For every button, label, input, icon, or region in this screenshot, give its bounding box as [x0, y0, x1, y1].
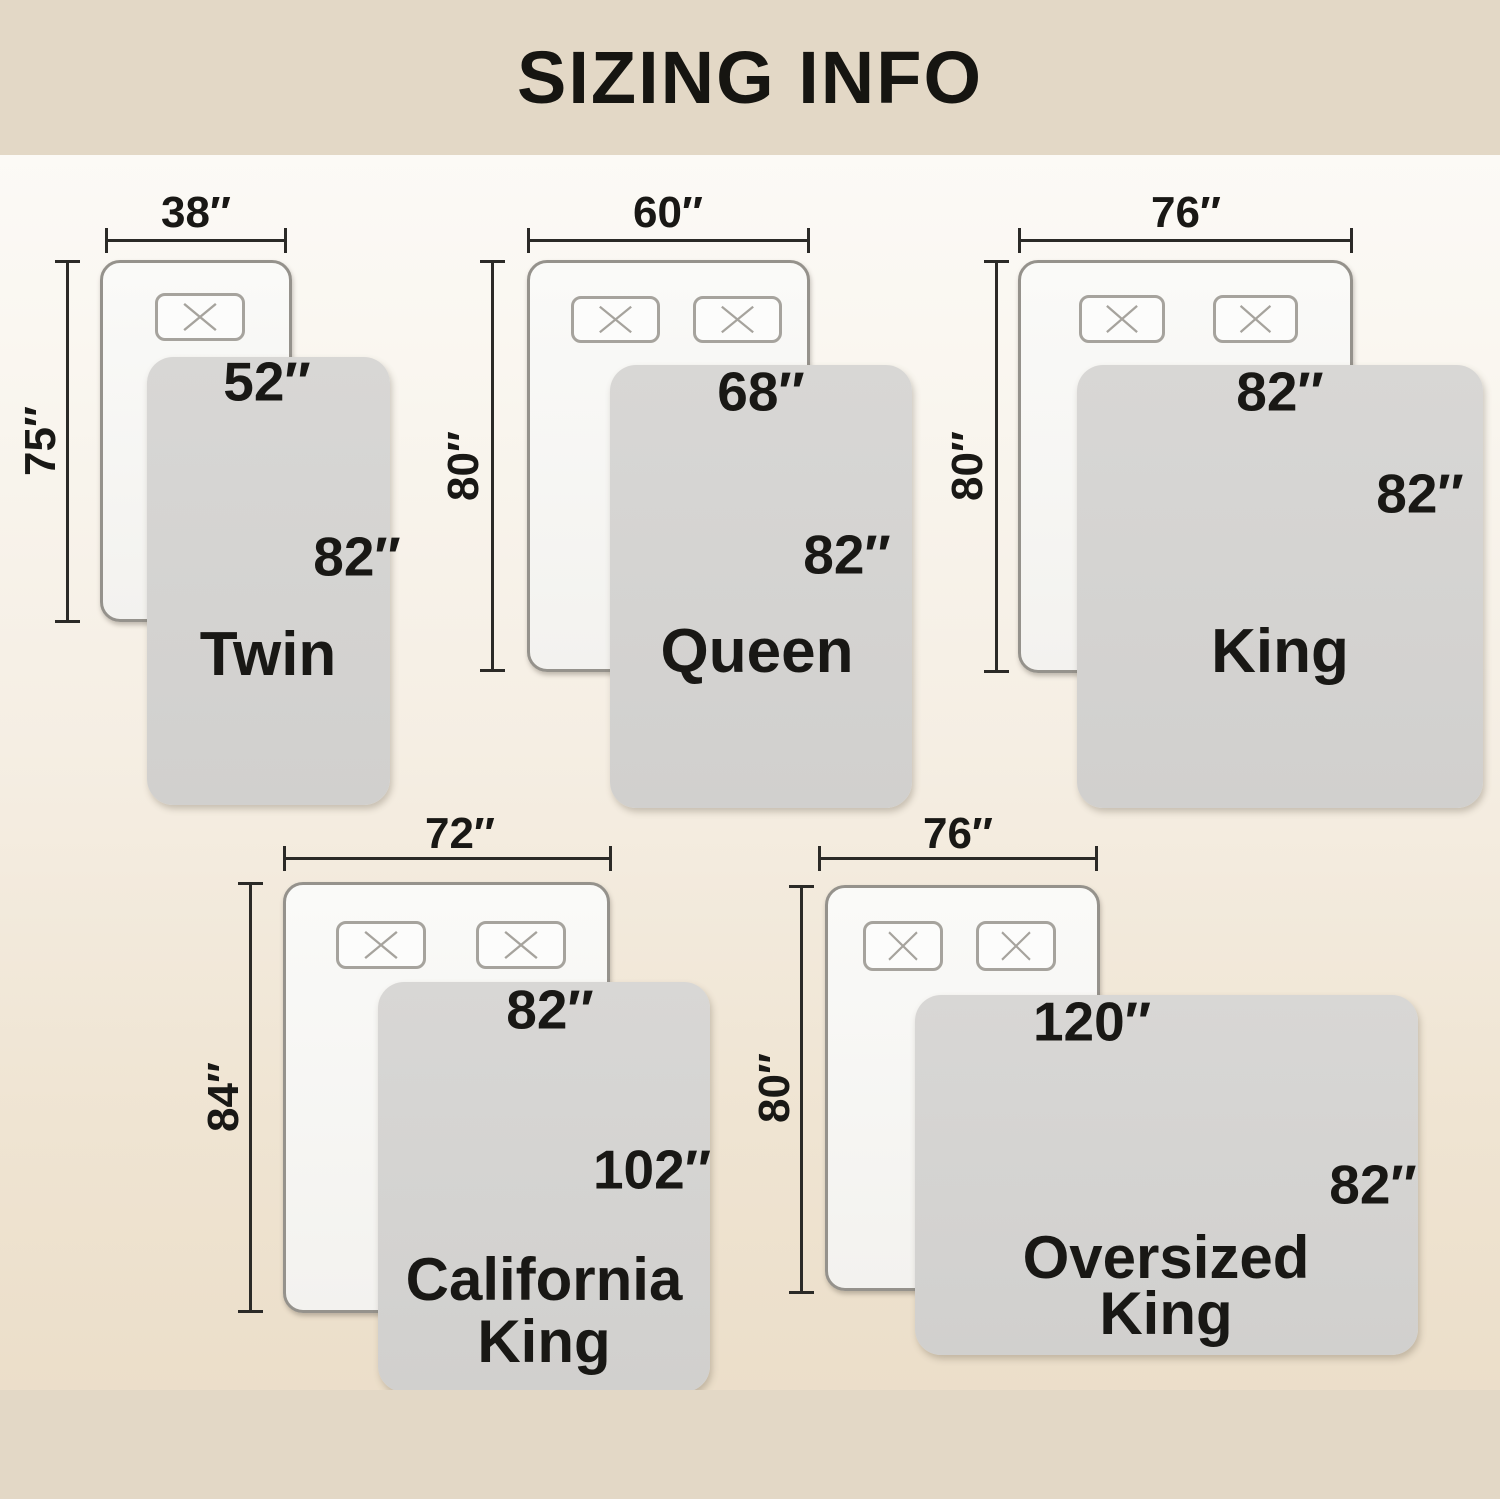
twin-width-dimension-line: [105, 239, 287, 242]
sizing-infographic: SIZING INFO 38″ 75″ 52″ 82″ Twin 60″ 80″: [0, 0, 1500, 1499]
pillow-x-icon: [866, 924, 940, 968]
footer-banner: The product may have slight measurement …: [0, 1390, 1500, 1499]
king-bed-length-label: 80″: [946, 431, 990, 501]
california-king-bed-length-label: 84″: [202, 1062, 246, 1132]
king-size-name: King: [1211, 621, 1349, 683]
pillow: [863, 921, 943, 971]
pillow-x-icon: [979, 924, 1053, 968]
oversized-king-bed-width-label: 76″: [923, 812, 993, 856]
queen-width-dimension-line: [527, 239, 810, 242]
oversized-king-size-name-line2: King: [1099, 1284, 1232, 1344]
california-king-size-name-line1: California: [406, 1250, 683, 1310]
pillow-x-icon: [1082, 298, 1162, 340]
twin-bed-length-label: 75″: [19, 406, 63, 476]
oversized-king-blanket-length-label: 82″: [1329, 1158, 1417, 1213]
pillow: [571, 296, 660, 343]
king-bed-width-label: 76″: [1151, 191, 1221, 235]
california-king-blanket-width-label: 82″: [506, 983, 594, 1038]
pillow-x-icon: [1216, 298, 1295, 340]
pillow-x-icon: [696, 299, 779, 340]
queen-length-dimension-line: [491, 260, 494, 672]
twin-length-dimension-line: [66, 260, 69, 623]
pillow: [336, 921, 426, 969]
queen-bed-width-label: 60″: [633, 191, 703, 235]
oversized-king-blanket-width-label: 120″: [1033, 995, 1151, 1050]
oversized-king-size-name-line1: Oversized: [1023, 1228, 1310, 1288]
king-blanket: [1077, 365, 1483, 808]
queen-blanket: [610, 365, 912, 808]
queen-blanket-width-label: 68″: [717, 365, 805, 420]
twin-blanket-width-label: 52″: [223, 355, 311, 410]
pillow: [1079, 295, 1165, 343]
twin-bed-width-label: 38″: [161, 191, 231, 235]
oversized-king-bed-length-label: 80″: [753, 1053, 797, 1123]
california-king-length-dimension-line: [249, 882, 252, 1313]
pillow-x-icon: [574, 299, 657, 340]
california-king-blanket-length-label: 102″: [593, 1143, 711, 1198]
queen-size-name: Queen: [661, 621, 854, 683]
pillow-x-icon: [479, 924, 563, 966]
pillow: [476, 921, 566, 969]
california-king-bed-width-label: 72″: [425, 812, 495, 856]
king-blanket-width-label: 82″: [1236, 365, 1324, 420]
pillow: [693, 296, 782, 343]
page-title: SIZING INFO: [517, 35, 983, 120]
oversized-king-length-dimension-line: [800, 885, 803, 1294]
pillow: [976, 921, 1056, 971]
king-blanket-length-label: 82″: [1376, 467, 1464, 522]
pillow: [1213, 295, 1298, 343]
california-king-size-name-line2: King: [477, 1312, 610, 1372]
pillow-x-icon: [158, 296, 242, 338]
header-banner: SIZING INFO: [0, 0, 1500, 155]
pillow-x-icon: [339, 924, 423, 966]
queen-bed-length-label: 80″: [442, 431, 486, 501]
twin-blanket-length-label: 82″: [313, 530, 401, 585]
queen-blanket-length-label: 82″: [803, 528, 891, 583]
king-length-dimension-line: [995, 260, 998, 673]
king-width-dimension-line: [1018, 239, 1353, 242]
twin-size-name: Twin: [200, 624, 337, 686]
pillow: [155, 293, 245, 341]
